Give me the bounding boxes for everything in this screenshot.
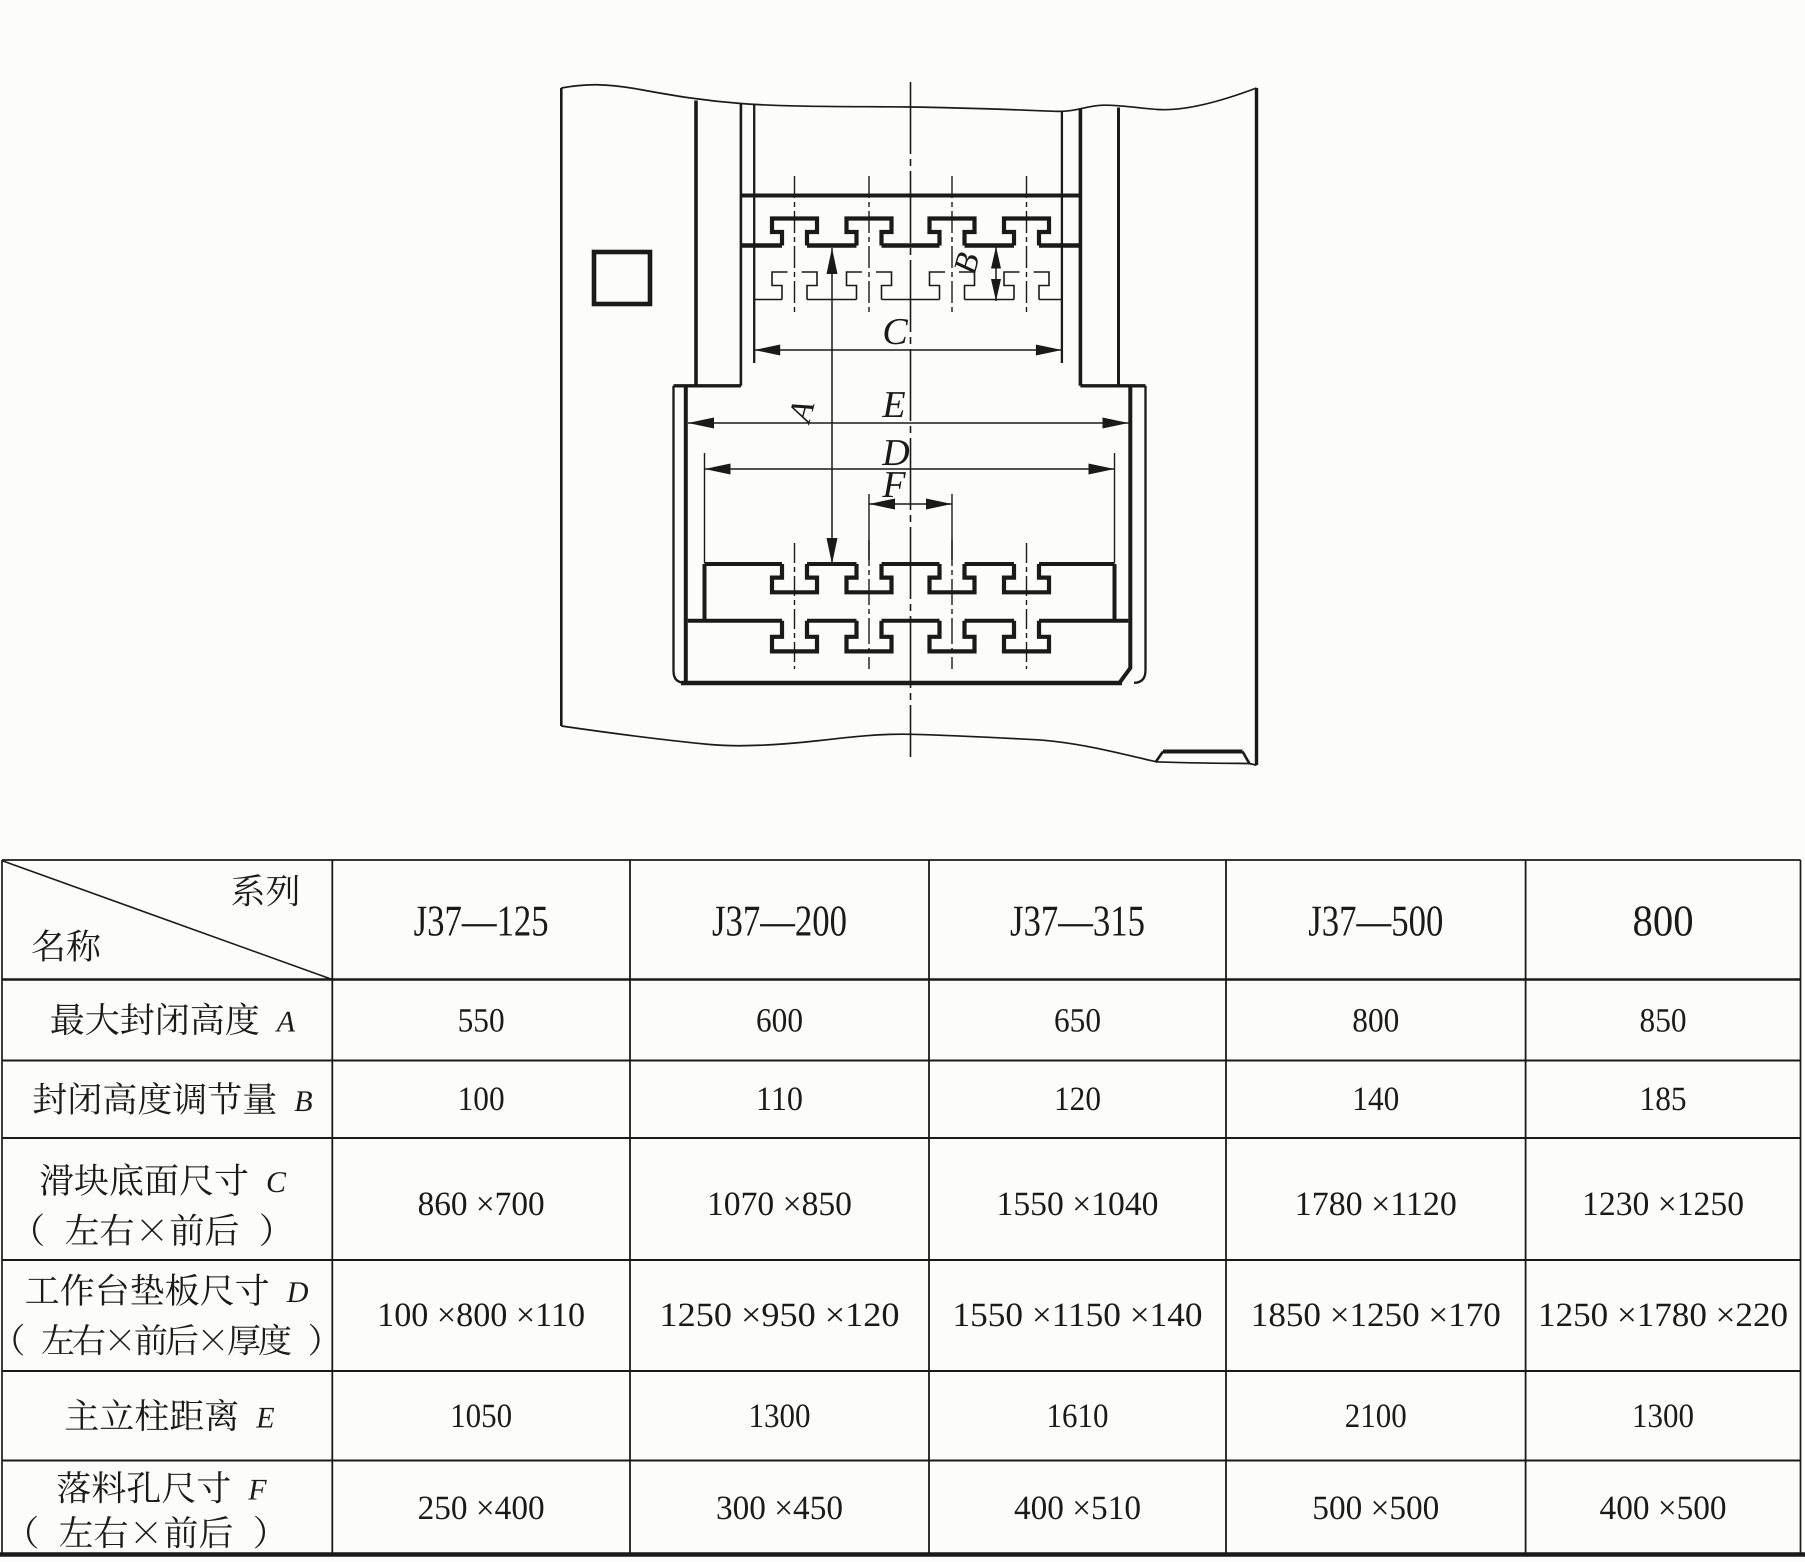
svg-text:J37—125: J37—125 (414, 897, 549, 946)
svg-text:100: 100 (458, 1081, 505, 1118)
svg-text:1300: 1300 (749, 1398, 811, 1435)
svg-text:1550 ×1150 ×140: 1550 ×1150 ×140 (953, 1297, 1203, 1334)
svg-text:600: 600 (756, 1003, 803, 1040)
svg-text:C: C (266, 1166, 287, 1199)
svg-text:1070 ×850: 1070 ×850 (707, 1186, 852, 1223)
svg-text:1250 ×1780 ×220: 1250 ×1780 ×220 (1538, 1297, 1788, 1334)
svg-text:E: E (881, 384, 905, 426)
svg-text:F: F (247, 1474, 267, 1507)
svg-text:J37—200: J37—200 (712, 897, 847, 946)
svg-text:1300: 1300 (1632, 1398, 1694, 1435)
svg-text:B: B (294, 1085, 312, 1118)
svg-text:C: C (882, 311, 908, 353)
svg-text:250 ×400: 250 ×400 (418, 1490, 545, 1527)
svg-text:J37—315: J37—315 (1010, 897, 1145, 946)
svg-text:110: 110 (756, 1081, 803, 1118)
svg-text:1850 ×1250 ×170: 1850 ×1250 ×170 (1251, 1297, 1501, 1334)
svg-text:800: 800 (1633, 897, 1694, 946)
svg-text:F: F (881, 464, 906, 506)
svg-text:650: 650 (1054, 1003, 1101, 1040)
svg-text:E: E (255, 1401, 274, 1434)
svg-text:100 ×800 ×110: 100 ×800 ×110 (377, 1297, 585, 1334)
svg-text:140: 140 (1352, 1081, 1399, 1118)
svg-text:1780 ×1120: 1780 ×1120 (1295, 1186, 1457, 1223)
svg-text:1610: 1610 (1047, 1398, 1109, 1435)
svg-text:B: B (947, 249, 987, 278)
svg-text:1250 ×950 ×120: 1250 ×950 ×120 (660, 1297, 900, 1334)
svg-text:300 ×450: 300 ×450 (716, 1490, 843, 1527)
svg-text:550: 550 (458, 1003, 505, 1040)
svg-text:400 ×510: 400 ×510 (1014, 1490, 1141, 1527)
svg-text:185: 185 (1640, 1081, 1687, 1118)
svg-text:800: 800 (1352, 1003, 1399, 1040)
svg-text:1230 ×1250: 1230 ×1250 (1582, 1186, 1744, 1223)
svg-text:1550 ×1040: 1550 ×1040 (997, 1186, 1159, 1223)
svg-text:860 ×700: 860 ×700 (418, 1186, 545, 1223)
svg-text:D: D (286, 1276, 309, 1309)
svg-text:500 ×500: 500 ×500 (1312, 1490, 1439, 1527)
svg-text:120: 120 (1054, 1081, 1101, 1118)
svg-text:J37—500: J37—500 (1308, 897, 1443, 946)
svg-text:2100: 2100 (1345, 1398, 1407, 1435)
svg-text:850: 850 (1640, 1003, 1687, 1040)
svg-text:400 ×500: 400 ×500 (1600, 1490, 1727, 1527)
svg-text:A: A (275, 1005, 296, 1038)
svg-text:1050: 1050 (450, 1398, 512, 1435)
